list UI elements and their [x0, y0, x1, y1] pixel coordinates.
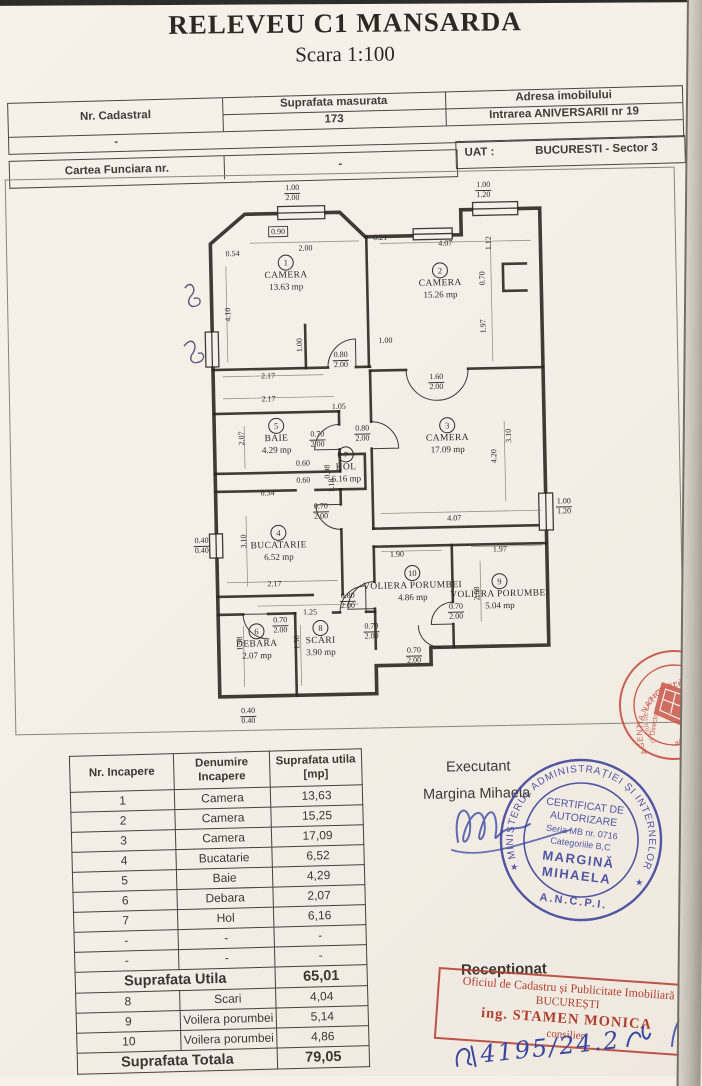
floor-plan: 1CAMERA13.63 mp2CAMERA15.26 mp3CAMERA17.… [179, 178, 631, 749]
dimension-label: 0.90 [268, 226, 288, 237]
room-number: 1 [278, 254, 294, 270]
plan-labels-layer: 1CAMERA13.63 mp2CAMERA15.26 mp3CAMERA17.… [179, 178, 631, 749]
dimension-value: 2.00 [333, 361, 349, 370]
room-area-table: Nr. IncapereDenumire IncapereSuprafata u… [69, 748, 370, 1074]
dimension-value: 2.00 [340, 602, 356, 611]
dimension-label-vertical: 3.10 [504, 429, 513, 443]
table-cell: 3 [71, 829, 175, 852]
dimension-value: 2.00 [272, 626, 288, 635]
room-number: 10 [404, 565, 420, 581]
door-dimension-label: 0.802.00 [340, 592, 356, 611]
uat-value: BUCURESTI - Sector 3 [516, 141, 676, 157]
uat-label: UAT : [464, 146, 514, 159]
table-cell: 79,05 [277, 1045, 370, 1068]
table-cell: Bucatarie [176, 847, 272, 870]
uat-cell: UAT : BUCURESTI - Sector 3 [455, 135, 686, 169]
dimension-label: 1.90 [390, 550, 404, 559]
table-cell: 5,14 [276, 1005, 368, 1027]
dimension-label: 2.17 [262, 394, 276, 403]
dimension-label-vertical: 1.97 [478, 319, 487, 333]
dimension-label-vertical: 2.07 [237, 431, 246, 445]
table-cell: 6,52 [272, 844, 364, 866]
table-cell: 4,29 [272, 864, 364, 886]
table-cell: 17,09 [271, 824, 363, 846]
table-cell: 5 [72, 869, 176, 892]
column-header: Suprafata utila [mp] [269, 749, 362, 787]
dimension-label-vertical: 0.70 [477, 271, 486, 285]
door-dimension-label: 1.002.00 [284, 184, 300, 203]
dimension-label: 1.97 [493, 544, 507, 553]
dimension-label: 1.05 [332, 402, 346, 411]
room-number: 9 [491, 573, 507, 589]
dimension-label-vertical: 2.58 [472, 586, 481, 600]
room-number: 4 [270, 525, 286, 541]
room-label-10: 10VOLIERA PORUMBEI4.86 mp [342, 562, 483, 605]
dimension-label: 0.34 [260, 488, 274, 497]
pen-scribble [451, 1040, 480, 1073]
table-cell: 7 [73, 909, 177, 932]
table-cell: - [75, 949, 179, 972]
table-cell: - [274, 944, 366, 966]
door-dimension-label: 0.702.00 [313, 502, 329, 521]
room-area: 6.52 mp [209, 551, 349, 564]
dimension-label: 1.00 [378, 336, 392, 345]
table-cell: 1 [70, 789, 174, 812]
door-dimension-label: 0.802.00 [354, 424, 370, 443]
dimension-label-vertical: 1.98 [292, 635, 301, 649]
dimension-label: 0.60 [296, 458, 310, 467]
area-table-wrap: Nr. IncapereDenumire IncapereSuprafata u… [69, 748, 370, 1074]
dimension-label-vertical: 4.20 [489, 449, 498, 463]
table-cell: 6 [73, 889, 177, 912]
stamp-director: Director [649, 710, 660, 736]
dimension-value: 1.20 [556, 507, 572, 516]
dimension-value: 2.00 [364, 632, 380, 641]
dimension-label: 1.25 [303, 607, 317, 616]
table-cell: 2 [71, 809, 175, 832]
room-number: 5 [268, 418, 284, 434]
door-dimension-label: 0.702.00 [406, 646, 422, 665]
table-cell: 8 [76, 990, 180, 1013]
table-cell: Suprafata Totala [77, 1048, 277, 1074]
table-cell: 15,25 [271, 804, 363, 826]
door-dimension-label: 0.702.00 [448, 602, 464, 621]
room-number: 2 [432, 262, 448, 278]
dimension-value: 0.40 [194, 547, 210, 556]
table-cell: Scari [180, 988, 276, 1011]
table-cell: Camera [175, 827, 271, 850]
column-header: Nr. Incapere [69, 754, 174, 792]
table-cell: 4 [72, 849, 176, 872]
table-cell: Voilera porumbei [180, 1008, 276, 1031]
room-area: 3.90 mp [251, 646, 391, 659]
dimension-label: 0.21 [373, 233, 387, 242]
door-dimension-label: 0.400.40 [240, 707, 256, 726]
room-area: 13.63 mp [216, 280, 356, 293]
dimension-label-vertical: 1.12 [484, 236, 493, 250]
table-cell: - [178, 947, 274, 970]
room-number: 3 [439, 417, 455, 433]
nr-cadastral-label: Nr. Cadastral [8, 107, 222, 125]
door-dimension-label: 1.001.20 [556, 497, 572, 516]
table-cell: 65,01 [275, 964, 368, 987]
round-stamp-blue: MINISTERUL ADMINISTRAȚIEI ȘI INTERNELOR … [497, 756, 665, 924]
dimension-value: 2.00 [354, 434, 370, 443]
stamp-star-icon: ★ [635, 877, 644, 888]
pen-scribble [621, 1022, 654, 1055]
door-dimension-label: 0.702.00 [272, 616, 288, 635]
table-cell: 13,63 [270, 784, 362, 806]
table-cell: - [74, 929, 178, 952]
table-cell: 2,07 [273, 884, 365, 906]
dimension-value: 2.00 [313, 512, 329, 521]
dimension-label: 0.60 [296, 475, 310, 484]
table-cell: 9 [76, 1010, 180, 1033]
room-number: 8 [312, 620, 328, 636]
door-dimension-label: 0.702.00 [309, 430, 325, 449]
table-cell: 4,04 [276, 985, 368, 1007]
dimension-value: 0.40 [240, 717, 256, 726]
dimension-label: 2.17 [267, 579, 281, 588]
dimension-value: 1.20 [475, 191, 491, 200]
dimension-label-vertical: 1.18 [327, 478, 336, 492]
page-scale: Scara 1:100 [0, 38, 690, 70]
dimension-label: 4.07 [447, 513, 461, 522]
door-dimension-label: 0.802.00 [333, 351, 349, 370]
table-cell: Camera [174, 787, 270, 810]
dimension-value: 2.00 [406, 656, 422, 665]
dimension-label: 2.17 [261, 371, 275, 380]
column-header: Denumire Incapere [173, 751, 270, 789]
table-cell: - [274, 924, 366, 946]
dimension-value: 2.00 [448, 612, 464, 621]
dimension-label-vertical: 0.98 [322, 465, 331, 479]
room-label-4: 4BUCATARIE6.52 mp [208, 521, 349, 564]
door-dimension-label: 1.001.20 [475, 181, 491, 200]
table-cell: Baie [176, 867, 272, 890]
table-cell: 6,16 [273, 904, 365, 926]
dimension-label-vertical: 3.10 [239, 534, 248, 548]
table-cell: Camera [175, 807, 271, 830]
table-cell: 4,86 [277, 1025, 369, 1047]
dimension-label: 4.07 [438, 238, 452, 247]
room-label-2: 2CAMERA15.26 mp [370, 259, 511, 302]
door-dimension-label: 0.702.00 [363, 622, 379, 641]
table-cell: 10 [77, 1030, 181, 1053]
page-title: RELEVEU C1 MANSARDA [0, 4, 690, 42]
dimension-value: 2.00 [284, 194, 300, 203]
table-cell: - [178, 927, 274, 950]
room-number: 7 [338, 446, 354, 462]
dimension-label-vertical: 1.00 [295, 338, 304, 352]
scanned-document-page: { "page": { "title": "RELEVEU C1 MANSARD… [0, 0, 702, 1076]
table-cell: Voilera porumbei [181, 1028, 277, 1051]
dimension-value: 2.00 [428, 383, 444, 392]
dimension-label: 0.54 [225, 249, 239, 258]
table-cell: Debara [177, 887, 273, 910]
dimension-value: 2.00 [309, 440, 325, 449]
room-area: 15.26 mp [370, 288, 510, 301]
table-cell: Hol [177, 907, 273, 930]
dimension-label: 2.00 [298, 243, 312, 252]
stamp-star-icon: ★ [510, 862, 519, 873]
door-dimension-label: 0.400.40 [193, 537, 209, 556]
dimension-label-vertical: 1.98 [235, 636, 244, 650]
door-dimension-label: 1.602.00 [428, 373, 444, 392]
dimension-label-vertical: 4.10 [223, 308, 232, 322]
